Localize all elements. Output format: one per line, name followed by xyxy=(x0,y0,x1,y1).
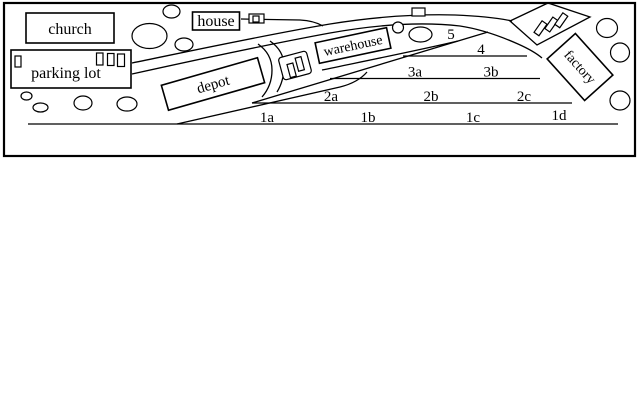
track-plan-canvas: church house parking lot depot warehouse… xyxy=(0,0,640,400)
depot-group: depot xyxy=(161,58,264,111)
tree xyxy=(163,5,180,18)
track-label-1c: 1c xyxy=(466,110,481,126)
tree xyxy=(21,92,32,100)
tree xyxy=(610,91,630,110)
track-label-3b: 3b xyxy=(484,65,499,81)
track-label-2a: 2a xyxy=(324,89,339,105)
track-label-1d: 1d xyxy=(552,108,568,124)
parking-lot-label: parking lot xyxy=(31,65,101,82)
spur-car-detail xyxy=(253,16,259,22)
tree xyxy=(74,96,92,110)
tree xyxy=(175,38,193,51)
tree xyxy=(117,97,137,111)
track-label-4: 4 xyxy=(477,42,485,58)
tree xyxy=(409,27,432,42)
tree xyxy=(132,24,167,49)
ramp-cars xyxy=(534,13,568,36)
tree xyxy=(611,43,630,62)
parking-marker xyxy=(118,54,125,67)
tree xyxy=(33,103,48,112)
tree xyxy=(393,22,404,33)
track-label-5: 5 xyxy=(447,27,455,43)
track-label-3a: 3a xyxy=(408,65,423,81)
factory-group: factory xyxy=(547,33,613,100)
parking-marker xyxy=(15,56,21,67)
parking-marker xyxy=(108,54,115,66)
track-label-2c: 2c xyxy=(517,89,532,105)
parking-marker xyxy=(97,53,104,65)
mainline-car xyxy=(412,8,425,16)
track-label-1a: 1a xyxy=(260,110,275,126)
house-label: house xyxy=(197,13,234,30)
track-label-1b: 1b xyxy=(361,110,376,126)
church-label: church xyxy=(48,21,92,38)
junction-platform-group xyxy=(278,51,312,81)
tree xyxy=(597,19,618,38)
track-label-2b: 2b xyxy=(424,89,439,105)
